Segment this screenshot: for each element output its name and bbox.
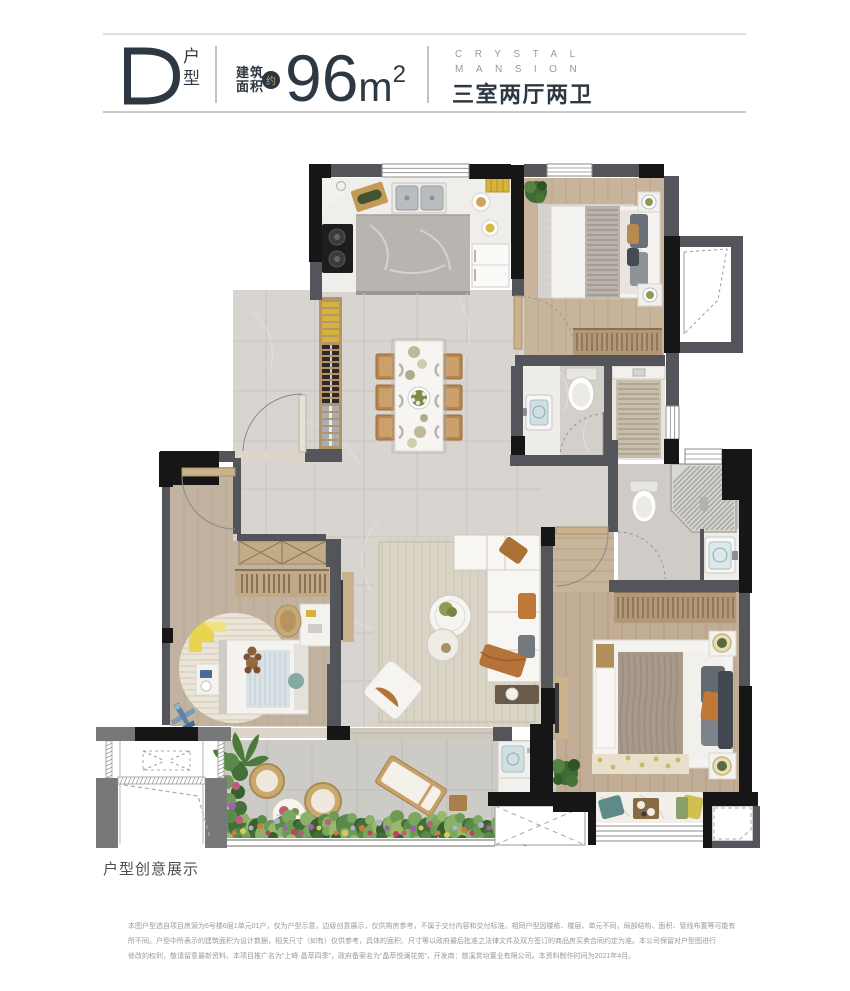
svg-text:建筑: 建筑 <box>236 65 264 80</box>
svg-text:户: 户 <box>183 47 200 66</box>
svg-text:户型创意展示: 户型创意展示 <box>103 860 199 878</box>
svg-text:本图户型选自项目房源为6号楼6层1单元01户，仅为户型示意，: 本图户型选自项目房源为6号楼6层1单元01户，仅为户型示意，边级创意展示，仅供购… <box>128 921 735 930</box>
svg-text:型: 型 <box>183 69 200 88</box>
svg-text:面积: 面积 <box>236 79 264 94</box>
svg-text:约: 约 <box>266 75 276 88</box>
svg-text:所不同。户型中所表示的建筑面积为设计数据，相关尺寸（如有）仅: 所不同。户型中所表示的建筑面积为设计数据，相关尺寸（如有）仅供参考，具体的面积、… <box>128 936 716 945</box>
svg-text:CRYSTAL: CRYSTAL <box>455 49 588 60</box>
svg-text:修改的权利，敬请留意最新资料。本项目推广名为“上峰·晶萃四季: 修改的权利，敬请留意最新资料。本项目推广名为“上峰·晶萃四季”，政府备案名为“晶… <box>128 951 635 960</box>
svg-text:MANSION: MANSION <box>455 64 589 75</box>
svg-text:三室两厅两卫: 三室两厅两卫 <box>452 82 593 107</box>
